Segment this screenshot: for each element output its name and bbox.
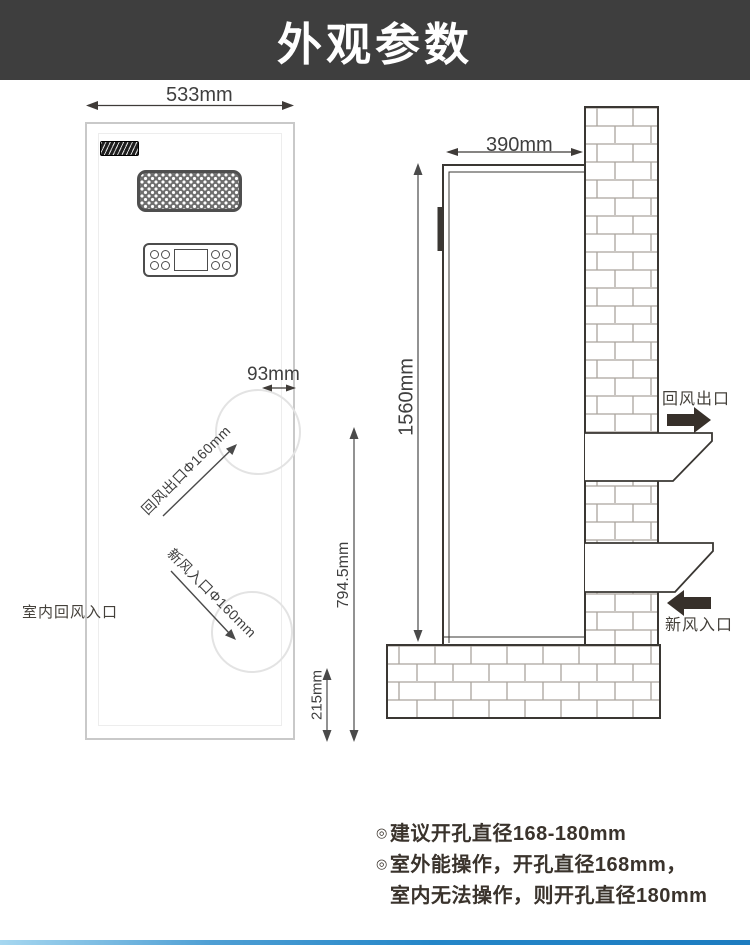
unit-side-view [438,165,586,645]
unit-front-view [85,122,295,740]
air-grille [137,170,242,212]
note-line-3: 室内无法操作，则开孔直径180mm [390,879,707,908]
unit-front-panel [98,133,282,726]
note-text: 建议开孔直径168-180mm [390,823,626,845]
control-dot [161,250,170,259]
width-dim-label: 533mm [166,84,233,107]
note-text: 室外能操作，开孔直径168mm， [390,854,687,876]
header-banner: 外观参数 [0,0,750,80]
outlet-height-dim-label: 794.5mm [335,542,353,609]
control-display [174,249,208,271]
note-line-1: ◎建议开孔直径168-180mm [376,817,626,846]
control-buttons-right [211,250,231,270]
fresh-inlet-duct [585,543,713,592]
note-bullet: ◎ [376,825,388,840]
return-outlet-duct [585,433,712,481]
control-dot [150,261,159,270]
height-dim-label: 1560mm [396,358,419,436]
brand-logo-badge [100,141,139,156]
spec-sheet-page: 外观参数 [0,0,750,945]
page-title: 外观参数 [277,8,473,73]
bottom-accent-bar [0,940,750,945]
control-dot [222,250,231,259]
indoor-return-label: 室内回风入口 [22,601,118,622]
control-panel [143,243,238,277]
control-dot [161,261,170,270]
base-height-dim-label: 215mm [309,670,326,720]
note-text: 室内无法操作，则开孔直径180mm [390,885,707,907]
control-dot [150,250,159,259]
control-dot [211,261,220,270]
outflow-right-arrow-icon [667,407,711,433]
brick-platform [387,645,660,718]
unit-handle [438,207,444,251]
offset-dim-label: 93mm [247,364,300,386]
note-line-2: ◎室外能操作，开孔直径168mm， [376,848,687,877]
control-buttons-left [150,250,170,270]
brick-wall [585,107,658,645]
control-dot [211,250,220,259]
fresh-inlet-label: 新风入口 [665,611,733,635]
depth-dim-label: 390mm [486,134,553,157]
note-bullet: ◎ [376,856,388,871]
control-dot [222,261,231,270]
return-outlet-label: 回风出口 [662,385,730,409]
